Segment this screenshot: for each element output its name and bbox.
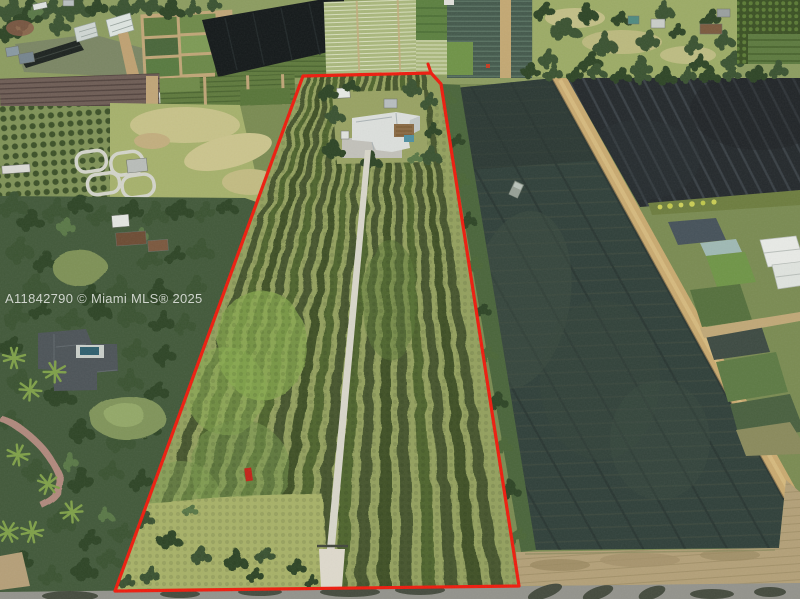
aerial-photo: A11842790 © Miami MLS® 2025 bbox=[0, 0, 800, 599]
mls-watermark: A11842790 © Miami MLS® 2025 bbox=[5, 291, 203, 306]
